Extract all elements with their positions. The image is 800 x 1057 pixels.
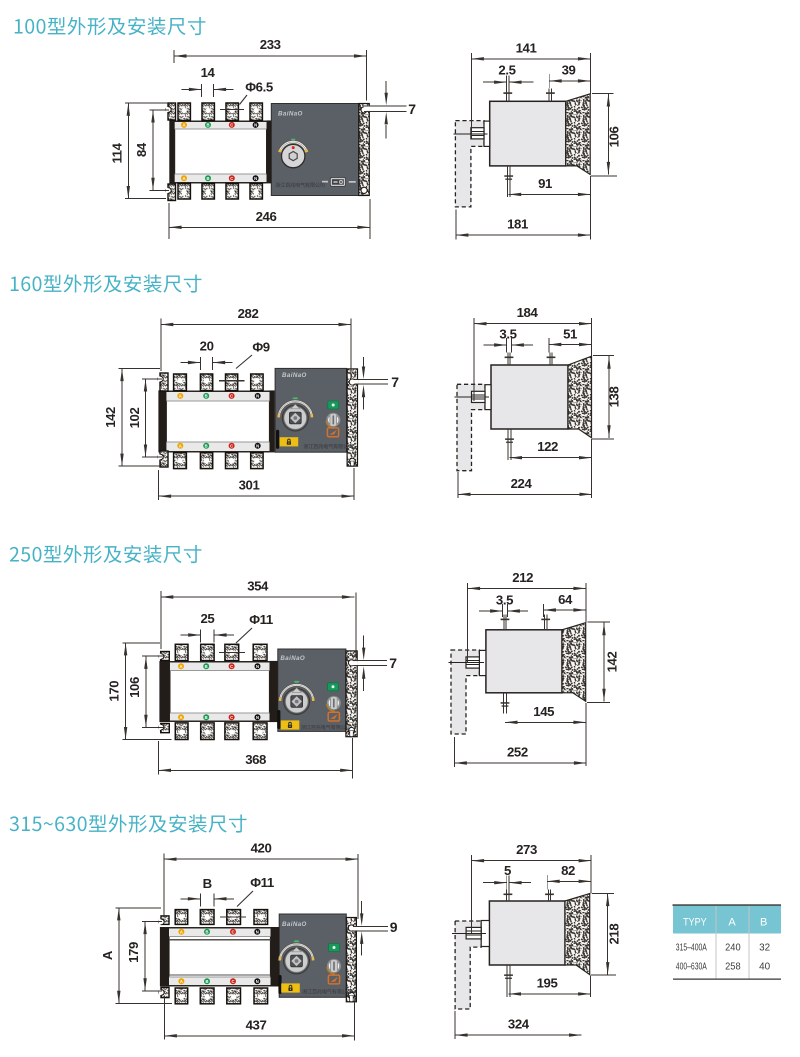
svg-text:C: C <box>230 443 233 448</box>
svg-text:9: 9 <box>390 919 398 935</box>
svg-text:C: C <box>230 394 233 399</box>
svg-text:315–400A: 315–400A <box>676 942 707 954</box>
svg-text:B: B <box>205 715 208 720</box>
svg-text:145: 145 <box>533 704 554 719</box>
svg-text:A: A <box>182 123 185 128</box>
svg-text:A: A <box>182 176 185 181</box>
svg-text:N: N <box>256 929 259 934</box>
svg-text:B: B <box>205 664 208 669</box>
svg-text:A: A <box>179 715 182 720</box>
svg-text:184: 184 <box>517 305 539 320</box>
svg-text:181: 181 <box>507 217 528 232</box>
svg-text:C: C <box>230 664 233 669</box>
svg-text:282: 282 <box>238 306 259 321</box>
svg-text:246: 246 <box>256 209 277 224</box>
svg-text:102: 102 <box>127 408 142 429</box>
svg-text:368: 368 <box>245 752 266 767</box>
svg-text:106: 106 <box>127 677 142 698</box>
svg-text:N: N <box>256 394 259 399</box>
svg-text:301: 301 <box>239 478 260 493</box>
svg-text:TYPY: TYPY <box>683 916 707 928</box>
svg-text:N: N <box>256 715 259 720</box>
svg-text:7: 7 <box>389 655 397 671</box>
svg-text:354: 354 <box>247 579 269 594</box>
svg-text:Φ11: Φ11 <box>249 612 273 627</box>
svg-text:273: 273 <box>516 842 537 857</box>
svg-text:114: 114 <box>110 142 125 163</box>
svg-text:C: C <box>230 176 233 181</box>
svg-text:B: B <box>760 916 767 928</box>
svg-text:B: B <box>205 443 208 448</box>
svg-text:C: C <box>231 979 234 984</box>
svg-text:B: B <box>205 979 208 984</box>
svg-text:20: 20 <box>200 339 214 354</box>
svg-text:N: N <box>256 979 259 984</box>
svg-text:82: 82 <box>561 863 575 878</box>
svg-text:Φ9: Φ9 <box>252 340 269 355</box>
svg-text:N: N <box>254 176 257 181</box>
svg-text:218: 218 <box>607 924 622 945</box>
svg-text:C: C <box>231 929 234 934</box>
svg-text:B: B <box>206 123 209 128</box>
svg-text:A: A <box>180 979 183 984</box>
svg-text:195: 195 <box>537 975 558 990</box>
svg-text:7: 7 <box>408 101 416 117</box>
svg-text:106: 106 <box>607 126 622 147</box>
svg-text:138: 138 <box>607 387 622 408</box>
svg-text:258: 258 <box>725 961 741 973</box>
svg-text:142: 142 <box>103 407 118 428</box>
svg-text:179: 179 <box>126 942 141 963</box>
svg-text:B: B <box>203 876 212 891</box>
svg-text:252: 252 <box>507 745 528 760</box>
svg-text:91: 91 <box>538 176 552 191</box>
svg-text:A: A <box>728 916 736 928</box>
svg-text:64: 64 <box>558 592 573 607</box>
svg-text:A: A <box>179 394 182 399</box>
svg-text:240: 240 <box>725 942 741 954</box>
svg-text:2.5: 2.5 <box>498 63 515 78</box>
svg-text:170: 170 <box>106 681 121 702</box>
svg-text:A: A <box>180 929 183 934</box>
svg-text:BaiNaO: BaiNaO <box>280 655 305 662</box>
svg-text:437: 437 <box>246 1017 267 1032</box>
svg-text:BaiNaO: BaiNaO <box>282 921 307 928</box>
svg-text:A: A <box>179 664 182 669</box>
svg-text:BaiNaO: BaiNaO <box>278 110 303 117</box>
svg-text:142: 142 <box>604 652 619 673</box>
svg-text:32: 32 <box>759 942 770 954</box>
svg-text:C: C <box>230 715 233 720</box>
svg-text:39: 39 <box>562 63 576 78</box>
svg-text:51: 51 <box>563 327 577 342</box>
svg-text:N: N <box>254 123 257 128</box>
svg-text:5: 5 <box>504 863 511 878</box>
svg-text:233: 233 <box>260 37 281 52</box>
svg-text:224: 224 <box>511 476 533 491</box>
svg-text:B: B <box>205 929 208 934</box>
svg-text:324: 324 <box>508 1017 530 1032</box>
svg-text:3.5: 3.5 <box>496 593 513 608</box>
svg-text:141: 141 <box>516 40 537 55</box>
svg-text:Φ11: Φ11 <box>250 875 274 890</box>
svg-text:212: 212 <box>512 570 533 585</box>
svg-text:A: A <box>179 443 182 448</box>
svg-text:B: B <box>205 394 208 399</box>
svg-text:14: 14 <box>201 65 216 80</box>
svg-text:BaiNaO: BaiNaO <box>282 372 307 379</box>
svg-text:7: 7 <box>391 374 399 390</box>
svg-text:122: 122 <box>537 439 558 454</box>
svg-text:3.5: 3.5 <box>499 327 516 342</box>
svg-text:B: B <box>206 176 209 181</box>
svg-text:84: 84 <box>134 142 149 157</box>
svg-text:Φ6.5: Φ6.5 <box>245 80 273 95</box>
svg-text:N: N <box>256 443 259 448</box>
svg-text:40: 40 <box>759 961 770 973</box>
svg-text:C: C <box>230 123 233 128</box>
svg-text:A: A <box>100 950 115 960</box>
svg-text:400–630A: 400–630A <box>676 961 707 973</box>
svg-text:N: N <box>256 664 259 669</box>
svg-text:25: 25 <box>200 611 214 626</box>
svg-text:420: 420 <box>251 841 272 856</box>
